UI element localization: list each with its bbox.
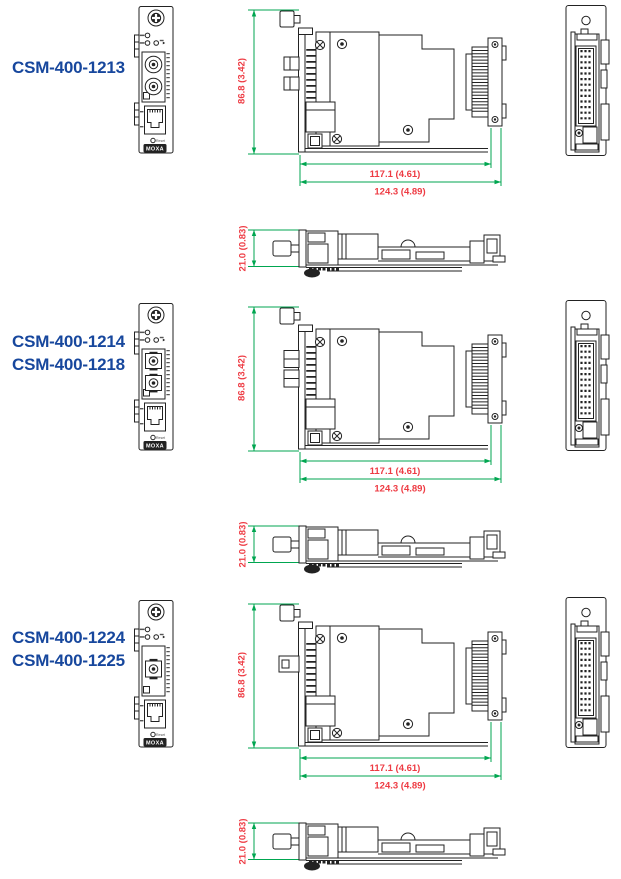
top-view-drawing: 21.0 (0.83)	[232, 221, 522, 283]
rear-view-drawing	[561, 299, 615, 454]
model-name: CSM-400-1218	[12, 353, 125, 376]
rear-view-base	[566, 301, 609, 451]
side-view-drawing: 86.8 (3.42) 117.1 (4.61) 124.3 (4.89)	[232, 2, 517, 198]
height-dimension-label: 86.8 (3.42)	[237, 58, 248, 104]
top-view-base	[248, 823, 505, 871]
sc-simplex-fiber-connector	[146, 659, 162, 679]
sc-duplex-connectors-side	[284, 351, 299, 388]
depth-dimension-label: 21.0 (0.83)	[238, 819, 249, 865]
side-view-drawing: 86.8 (3.42) 117.1 (4.61) 124.3 (4.89)	[232, 299, 517, 495]
reset-label: Reset	[156, 436, 165, 440]
model-name: CSM-400-1213	[12, 56, 125, 79]
depth-dimension-label: 21.0 (0.83)	[238, 226, 249, 272]
moxa-badge-label: MOXA	[146, 741, 164, 747]
overall-length-dimension-label: 124.3 (4.89)	[374, 484, 425, 495]
dimension-drawings-page: CSM-400-1213 Reset MOXA 86.8 (3.42) 117.…	[0, 0, 621, 879]
side-view-base	[248, 604, 506, 780]
overall-length-dimension-label: 124.3 (4.89)	[374, 781, 425, 792]
side-view-base	[248, 307, 506, 483]
body-length-dimension-label: 117.1 (4.61)	[370, 169, 421, 180]
top-view-drawing: 21.0 (0.83)	[232, 814, 522, 876]
top-view-base	[248, 526, 505, 574]
rear-view-drawing	[561, 596, 615, 751]
model-label: CSM-400-1214 CSM-400-1218	[12, 330, 125, 376]
model-name: CSM-400-1225	[12, 649, 125, 672]
st-connectors-side	[284, 57, 299, 90]
moxa-badge-label: MOXA	[146, 147, 164, 153]
top-view-drawing: 21.0 (0.83)	[232, 517, 522, 579]
rear-view-drawing	[561, 4, 615, 159]
depth-dimension-label: 21.0 (0.83)	[238, 522, 249, 568]
body-length-dimension-label: 117.1 (4.61)	[370, 763, 421, 774]
top-view-base	[248, 230, 505, 278]
model-label: CSM-400-1224 CSM-400-1225	[12, 626, 125, 672]
moxa-badge-label: MOXA	[146, 444, 164, 450]
body-length-dimension-label: 117.1 (4.61)	[370, 466, 421, 477]
model-name: CSM-400-1224	[12, 626, 125, 649]
height-dimension-label: 86.8 (3.42)	[237, 652, 248, 698]
side-view-base	[248, 10, 506, 186]
front-view-drawing: Reset MOXA	[134, 5, 178, 155]
rear-view-base	[566, 6, 609, 156]
reset-label: Reset	[156, 733, 165, 737]
model-name: CSM-400-1214	[12, 330, 125, 353]
sc-simplex-connector-side	[279, 656, 299, 672]
side-view-drawing: 86.8 (3.42) 117.1 (4.61) 124.3 (4.89)	[232, 596, 517, 792]
model-label: CSM-400-1213	[12, 56, 125, 79]
reset-label: Reset	[156, 139, 165, 143]
front-view-drawing: Reset MOXA	[134, 599, 178, 749]
height-dimension-label: 86.8 (3.42)	[237, 355, 248, 401]
rear-view-base	[566, 598, 609, 748]
front-view-drawing: Reset MOXA	[134, 302, 178, 452]
overall-length-dimension-label: 124.3 (4.89)	[374, 187, 425, 198]
